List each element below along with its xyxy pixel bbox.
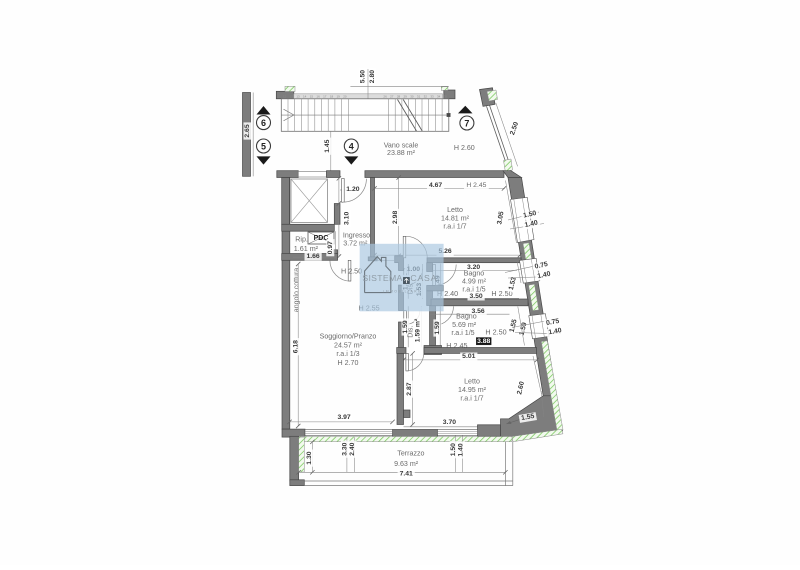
svg-text:3.97: 3.97 (337, 414, 350, 421)
svg-text:11: 11 (283, 95, 286, 99)
svg-text:r.a.i 1/3: r.a.i 1/3 (336, 350, 359, 358)
svg-text:14.81 m²: 14.81 m² (441, 214, 470, 222)
svg-text:Letto: Letto (447, 206, 463, 214)
svg-text:3.30: 3.30 (341, 442, 348, 455)
svg-text:6: 6 (261, 118, 266, 128)
svg-text:31: 31 (417, 95, 421, 99)
svg-text:r.a.i 1/5: r.a.i 1/5 (451, 329, 474, 337)
svg-text:1.30: 1.30 (306, 451, 313, 464)
svg-text:12: 12 (290, 95, 294, 99)
svg-text:29: 29 (404, 95, 408, 99)
svg-text:Ingresso: Ingresso (343, 231, 370, 239)
svg-text:H 2.70: H 2.70 (338, 359, 359, 367)
svg-text:Bagno: Bagno (464, 269, 485, 277)
svg-text:2.98: 2.98 (392, 211, 399, 224)
svg-text:1.50: 1.50 (450, 443, 457, 456)
svg-text:17: 17 (323, 95, 327, 99)
svg-text:4: 4 (349, 141, 354, 151)
svg-text:32: 32 (424, 95, 428, 99)
svg-text:19: 19 (337, 95, 341, 99)
svg-text:15: 15 (310, 95, 314, 99)
svg-text:r.a.i 1/7: r.a.i 1/7 (460, 394, 483, 402)
svg-text:3.88: 3.88 (477, 338, 490, 345)
svg-text:4.67: 4.67 (429, 182, 442, 189)
svg-text:13: 13 (296, 95, 300, 99)
svg-text:1.59: 1.59 (434, 321, 441, 334)
svg-text:7.41: 7.41 (400, 470, 413, 477)
svg-text:34: 34 (437, 95, 441, 99)
svg-text:1.66: 1.66 (306, 253, 319, 260)
svg-text:angolo cottura: angolo cottura (294, 268, 301, 312)
svg-text:H 2.45: H 2.45 (466, 182, 486, 189)
svg-text:2.87: 2.87 (406, 382, 413, 395)
svg-text:Dis.: Dis. (407, 326, 414, 338)
svg-text:14.95 m²: 14.95 m² (458, 386, 487, 394)
svg-text:18: 18 (330, 95, 334, 99)
svg-text:24.57 m²: 24.57 m² (334, 341, 363, 349)
svg-text:20: 20 (343, 95, 347, 99)
svg-text:PDC: PDC (314, 235, 329, 242)
svg-text:4.99 m²: 4.99 m² (462, 277, 487, 285)
svg-text:2.65: 2.65 (244, 124, 251, 137)
svg-text:1.20: 1.20 (346, 186, 359, 193)
svg-text:3.70: 3.70 (443, 419, 456, 426)
svg-text:Soggiorno/Pranzo: Soggiorno/Pranzo (320, 332, 377, 340)
svg-text:Terrazzo: Terrazzo (397, 450, 424, 458)
svg-text:5: 5 (261, 141, 266, 151)
svg-text:5.50: 5.50 (359, 70, 366, 83)
svg-text:Letto: Letto (464, 377, 480, 385)
svg-text:H 2.50: H 2.50 (485, 328, 506, 337)
svg-text:1.45: 1.45 (324, 139, 331, 152)
svg-text:7: 7 (464, 118, 469, 128)
svg-text:0.97: 0.97 (327, 241, 334, 254)
svg-text:28: 28 (397, 95, 401, 99)
svg-text:16: 16 (316, 95, 320, 99)
svg-text:9.63 m²: 9.63 m² (394, 460, 419, 468)
svg-text:Rip.: Rip. (295, 235, 308, 243)
svg-text:6.18: 6.18 (293, 340, 300, 353)
svg-text:1.40: 1.40 (457, 443, 464, 456)
svg-text:26: 26 (383, 95, 387, 99)
svg-text:27: 27 (390, 95, 394, 99)
svg-text:33: 33 (430, 95, 434, 99)
svg-text:SISTEMA: SISTEMA (362, 273, 402, 283)
svg-text:1.61 m²: 1.61 m² (294, 244, 319, 253)
svg-text:35: 35 (444, 95, 448, 99)
svg-text:H 2.60: H 2.60 (454, 144, 475, 152)
svg-text:30: 30 (410, 95, 414, 99)
svg-text:Bagno: Bagno (456, 313, 477, 321)
svg-text:CASA: CASA (410, 273, 437, 283)
svg-text:5.69 m²: 5.69 m² (452, 321, 477, 329)
svg-text:5.01: 5.01 (462, 353, 475, 360)
svg-text:2.40: 2.40 (349, 442, 356, 455)
svg-text:3.50: 3.50 (469, 293, 482, 300)
svg-text:23.88 m²: 23.88 m² (387, 149, 416, 157)
svg-text:14: 14 (303, 95, 307, 99)
svg-text:r.a.i 1/7: r.a.i 1/7 (443, 222, 466, 230)
svg-text:3.10: 3.10 (343, 212, 350, 225)
svg-text:2.80: 2.80 (369, 70, 376, 83)
svg-text:IMMOBILIARE: IMMOBILIARE (383, 289, 422, 293)
svg-text:1.59 m²: 1.59 m² (414, 318, 421, 342)
svg-text:H 2.50: H 2.50 (341, 266, 362, 275)
